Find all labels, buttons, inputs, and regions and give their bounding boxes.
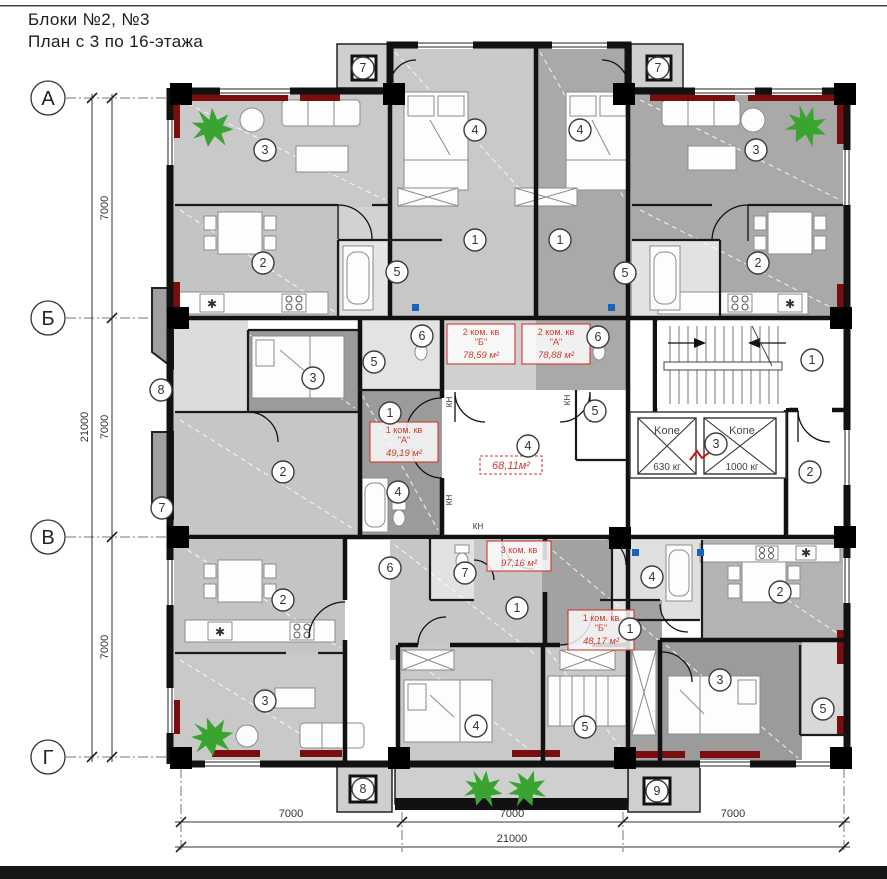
svg-text:2: 2 [807,465,814,479]
sofa [300,723,364,748]
svg-text:1: 1 [627,622,634,636]
wardrobe [632,650,656,735]
room-marker: 7 [454,562,476,584]
room-marker: 4 [517,435,539,457]
bathtub [666,545,692,601]
svg-text:В: В [41,527,54,549]
room-marker: 6 [587,326,609,348]
room-marker: 2 [272,589,294,611]
bottom-bar [0,866,887,879]
room-marker: 5 [812,698,834,720]
wardrobe [402,650,454,670]
svg-text:1: 1 [387,406,394,420]
room-marker: 1 [379,402,401,424]
room-marker: 2 [272,461,294,483]
window [205,760,260,768]
elevator-capacity: 630 кг [653,462,681,473]
wardrobe [560,650,615,670]
bathtub [362,478,388,532]
window [166,120,174,165]
room-marker: 3 [254,690,276,712]
window [695,87,755,95]
kn-label: КН [445,397,454,408]
axis-row-g: Г [31,740,65,774]
room-marker: 2 [747,252,769,274]
room-marker: 3 [254,139,276,161]
room-marker: 7 [647,57,669,79]
svg-text:1: 1 [514,601,521,615]
window [772,87,822,95]
svg-text:8: 8 [158,383,165,397]
svg-text:2: 2 [755,256,762,270]
svg-text:3: 3 [262,694,269,708]
svg-text:2: 2 [260,256,267,270]
svg-text:4: 4 [577,123,584,137]
svg-text:"Б": "Б" [595,623,607,633]
room-marker: 4 [465,715,487,737]
svg-text:2: 2 [280,465,287,479]
svg-text:78,88 м²: 78,88 м² [538,350,575,361]
wardrobe [515,188,577,206]
dim-span-vertical-2: 7000 [99,415,111,439]
room-marker: 1 [801,349,823,371]
svg-text:1: 1 [809,353,816,367]
svg-text:3 ком. кв: 3 ком. кв [501,545,538,555]
room-marker: 8 [352,778,374,800]
room-marker: 1 [464,229,486,251]
armchair [741,108,765,132]
kitchen-counter: ✱ [178,292,328,314]
kn-label: КН [563,395,572,406]
room-marker: 4 [464,119,486,141]
svg-text:4: 4 [472,123,479,137]
corridor-area-label: 68,11м² [480,456,542,474]
room-marker: 8 [150,379,172,401]
room-marker: 6 [411,325,433,347]
room-marker: 5 [584,400,606,422]
svg-text:5: 5 [582,720,589,734]
svg-text:5: 5 [592,404,599,418]
window [220,87,290,95]
coffee-table [296,146,348,172]
room-marker: 2 [799,461,821,483]
svg-text:7: 7 [462,566,469,580]
coffee-table [275,688,315,708]
room-marker: 4 [569,119,591,141]
svg-text:3: 3 [262,143,269,157]
kn-label: КН [473,522,484,531]
svg-text:3: 3 [713,437,720,451]
svg-text:5: 5 [622,266,629,280]
sofa [662,100,740,126]
dim-span-bottom-1: 7000 [279,808,303,820]
svg-text:4: 4 [395,485,402,499]
svg-text:7: 7 [655,61,662,75]
svg-text:8: 8 [360,782,367,796]
svg-text:5: 5 [371,355,378,369]
svg-text:Г: Г [43,747,54,769]
coffee-table [688,146,736,170]
svg-text:68,11м²: 68,11м² [492,460,530,472]
dim-total-bottom: 21000 [497,833,528,845]
svg-text:Б: Б [41,308,54,330]
window [843,150,851,205]
staircase [657,322,789,408]
elevator-1: Kone 630 кг [638,418,696,474]
room-marker: 6 [379,557,401,579]
bathtub [343,246,373,310]
svg-text:2 ком. кв: 2 ком. кв [538,327,575,337]
wardrobe [398,188,458,206]
room-marker: 2 [252,252,274,274]
dim-span-bottom-3: 7000 [721,808,745,820]
window [418,41,473,49]
svg-text:А: А [41,88,55,110]
bed [252,336,344,398]
svg-text:4: 4 [473,719,480,733]
bed [404,92,468,190]
title-line-2: План с 3 по 16-этажа [28,32,203,51]
dim-total-vertical: 21000 [79,412,91,443]
svg-text:97,16 м²: 97,16 м² [501,558,538,569]
apartment-label-2kv-a: 2 ком. кв "А" 78,88 м² [522,324,590,364]
dim-span-vertical-3: 7000 [99,635,111,659]
svg-text:6: 6 [419,329,426,343]
room-marker: 1 [506,597,528,619]
svg-text:3: 3 [310,371,317,385]
svg-text:1: 1 [472,233,479,247]
room-marker: 9 [646,780,668,802]
axis-row-b: Б [31,301,65,335]
socket-marker [697,549,704,556]
apartment-label-2kv-b: 2 ком. кв "Б" 78,59 м² [447,324,515,364]
room-marker: 4 [387,481,409,503]
svg-text:2: 2 [280,593,287,607]
room-marker: 7 [151,497,173,519]
svg-text:48,17 м²: 48,17 м² [583,636,620,647]
elevator-brand: Kone [654,425,680,437]
svg-text:5: 5 [394,265,401,279]
sink-icon: ✱ [207,297,217,311]
room-marker: 4 [641,566,663,588]
elevator-capacity: 1000 кг [725,462,758,473]
axis-row-v: В [31,520,65,554]
armchair [240,108,264,132]
svg-text:4: 4 [525,439,532,453]
dim-span-vertical-1: 7000 [99,196,111,220]
bathtub [650,246,680,310]
room-marker: 3 [302,367,324,389]
socket-marker [412,304,419,311]
socket-marker [608,304,615,311]
elevator-brand: Kone [729,425,755,437]
kitchen-counter: ✱ [700,544,840,562]
room-marker: 3 [745,139,767,161]
window [843,558,851,603]
svg-text:9: 9 [654,784,661,798]
svg-text:1: 1 [557,233,564,247]
svg-text:78,59 м²: 78,59 м² [463,350,500,361]
room-marker: 5 [363,351,385,373]
armchair [236,725,258,747]
toilet [392,502,406,526]
socket-marker [632,549,639,556]
room-marker: 5 [386,261,408,283]
window [166,560,174,605]
window [552,41,607,49]
room-marker: 1 [549,229,571,251]
svg-text:"Б": "Б" [475,337,487,347]
sofa [282,100,360,126]
window [843,430,851,485]
svg-text:6: 6 [387,561,394,575]
svg-text:"А": "А" [398,435,410,445]
room-marker: 7 [352,57,374,79]
room-marker: 5 [574,716,596,738]
room-marker: 3 [705,433,727,455]
axis-row-a: А [31,81,65,115]
floor-plan-drawing: Блоки №2, №3 План с 3 по 16-этажа А Б В … [0,0,887,879]
window [166,688,174,733]
kn-label: КН [445,495,454,506]
room-marker: 5 [614,262,636,284]
sink-icon: ✱ [785,297,795,311]
balcony-rail [395,798,628,810]
sink-icon: ✱ [801,546,811,560]
svg-text:2: 2 [777,585,784,599]
svg-text:6: 6 [595,330,602,344]
svg-text:"А": "А" [550,337,562,347]
svg-text:49,19 м²: 49,19 м² [386,448,423,459]
room-marker: 2 [769,581,791,603]
top-border-line [0,5,887,7]
svg-text:7: 7 [360,61,367,75]
svg-text:1 ком. кв: 1 ком. кв [583,613,620,623]
floor-plan-page: Блоки №2, №3 План с 3 по 16-этажа А Б В … [0,0,887,879]
svg-text:1 ком. кв: 1 ком. кв [386,425,423,435]
bed [566,92,630,190]
svg-text:3: 3 [717,673,724,687]
sink-icon: ✱ [215,625,225,639]
apartment-label-3kv: 3 ком. кв 97,16 м² [487,541,551,571]
svg-text:5: 5 [820,702,827,716]
svg-text:4: 4 [649,570,656,584]
room-marker: 1 [619,618,641,640]
svg-text:7: 7 [159,501,166,515]
svg-text:2 ком. кв: 2 ком. кв [463,327,500,337]
apartment-label-1kv-a: 1 ком. кв "А" 49,19 м² [370,422,438,462]
window [700,760,750,768]
svg-text:3: 3 [753,143,760,157]
title-line-1: Блоки №2, №3 [28,10,150,29]
room-marker: 3 [709,669,731,691]
